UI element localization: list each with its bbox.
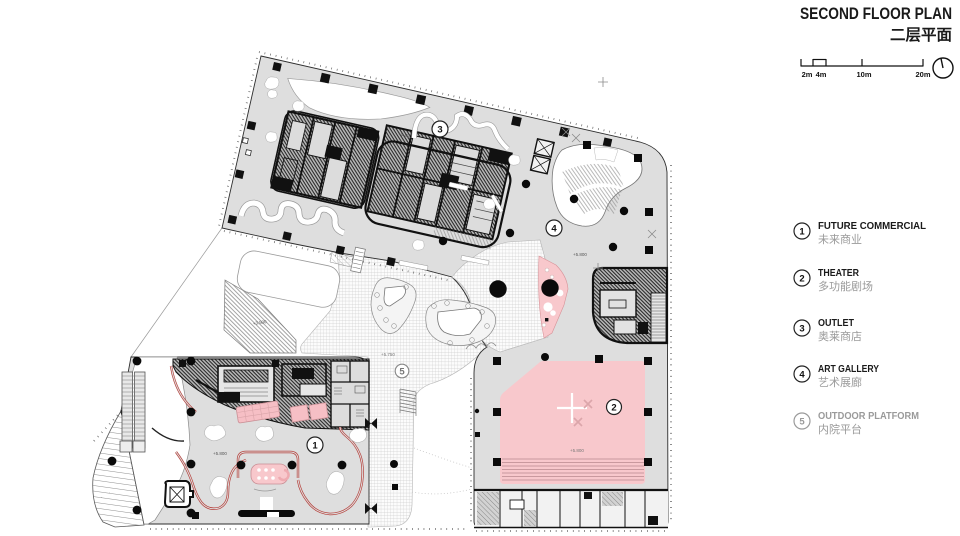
svg-text:FUTURE COMMERCIAL: FUTURE COMMERCIAL [818, 220, 927, 232]
svg-text:+5.800: +5.800 [213, 451, 227, 456]
svg-text:10m: 10m [856, 70, 871, 79]
svg-text:二层平面: 二层平面 [890, 26, 952, 44]
svg-text:1: 1 [312, 441, 318, 452]
svg-text:3: 3 [437, 125, 442, 136]
svg-text:+5.750: +5.750 [381, 352, 395, 357]
svg-text:2m: 2m [802, 70, 813, 79]
svg-text:2: 2 [799, 274, 804, 285]
svg-text:OUTDOOR PLATFORM: OUTDOOR PLATFORM [818, 410, 919, 422]
svg-text:+5.800: +5.800 [573, 252, 587, 257]
svg-text:ART GALLERY: ART GALLERY [818, 363, 879, 375]
svg-text:THEATER: THEATER [818, 267, 859, 279]
svg-text:5: 5 [399, 367, 405, 378]
svg-text:20m: 20m [915, 70, 930, 79]
svg-text:内院平台: 内院平台 [818, 422, 862, 436]
svg-text:OUTLET: OUTLET [818, 317, 854, 329]
svg-text:4: 4 [551, 224, 557, 235]
svg-text:1: 1 [799, 227, 805, 238]
svg-text:艺术展廊: 艺术展廊 [818, 375, 862, 389]
svg-text:4m: 4m [816, 70, 827, 79]
svg-text:3: 3 [799, 324, 804, 335]
svg-text:5: 5 [799, 417, 805, 428]
svg-text:多功能剧场: 多功能剧场 [818, 279, 873, 293]
svg-text:4: 4 [799, 370, 805, 381]
svg-text:2: 2 [611, 403, 616, 414]
svg-text:奥莱商店: 奥莱商店 [818, 329, 862, 343]
svg-text:+5.800: +5.800 [570, 448, 584, 453]
svg-text:SECOND FLOOR PLAN: SECOND FLOOR PLAN [800, 5, 952, 23]
svg-text:未来商业: 未来商业 [818, 232, 862, 246]
